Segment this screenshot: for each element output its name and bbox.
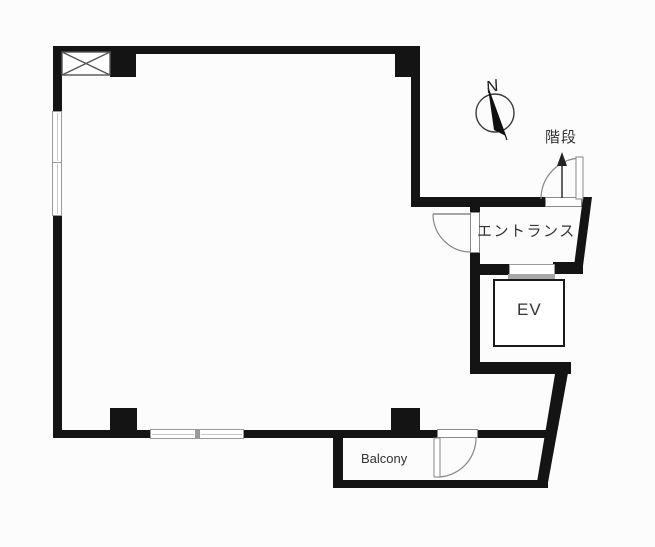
floor-plan: N 階段 エントランス EV Balcony bbox=[0, 0, 655, 547]
plan-overlay: N bbox=[0, 0, 655, 547]
duct-x-box bbox=[62, 52, 110, 75]
door-arc-balcony bbox=[437, 438, 476, 477]
stairs-label: 階段 bbox=[545, 126, 577, 147]
balcony-label: Balcony bbox=[361, 451, 407, 466]
door-leaf-balcony bbox=[434, 438, 440, 477]
wall-lower-right-slanted bbox=[536, 362, 570, 488]
elevator-label: EV bbox=[517, 300, 542, 320]
compass-north-label: N bbox=[484, 76, 501, 98]
door-arc-entrance bbox=[433, 214, 470, 252]
door-leaf-stairs bbox=[576, 157, 583, 199]
stairs-direction-arrow-icon bbox=[557, 152, 567, 198]
entrance-label: エントランス bbox=[477, 220, 576, 241]
compass-icon: N bbox=[476, 76, 514, 140]
wall-entrance-right-slanted bbox=[574, 197, 592, 266]
